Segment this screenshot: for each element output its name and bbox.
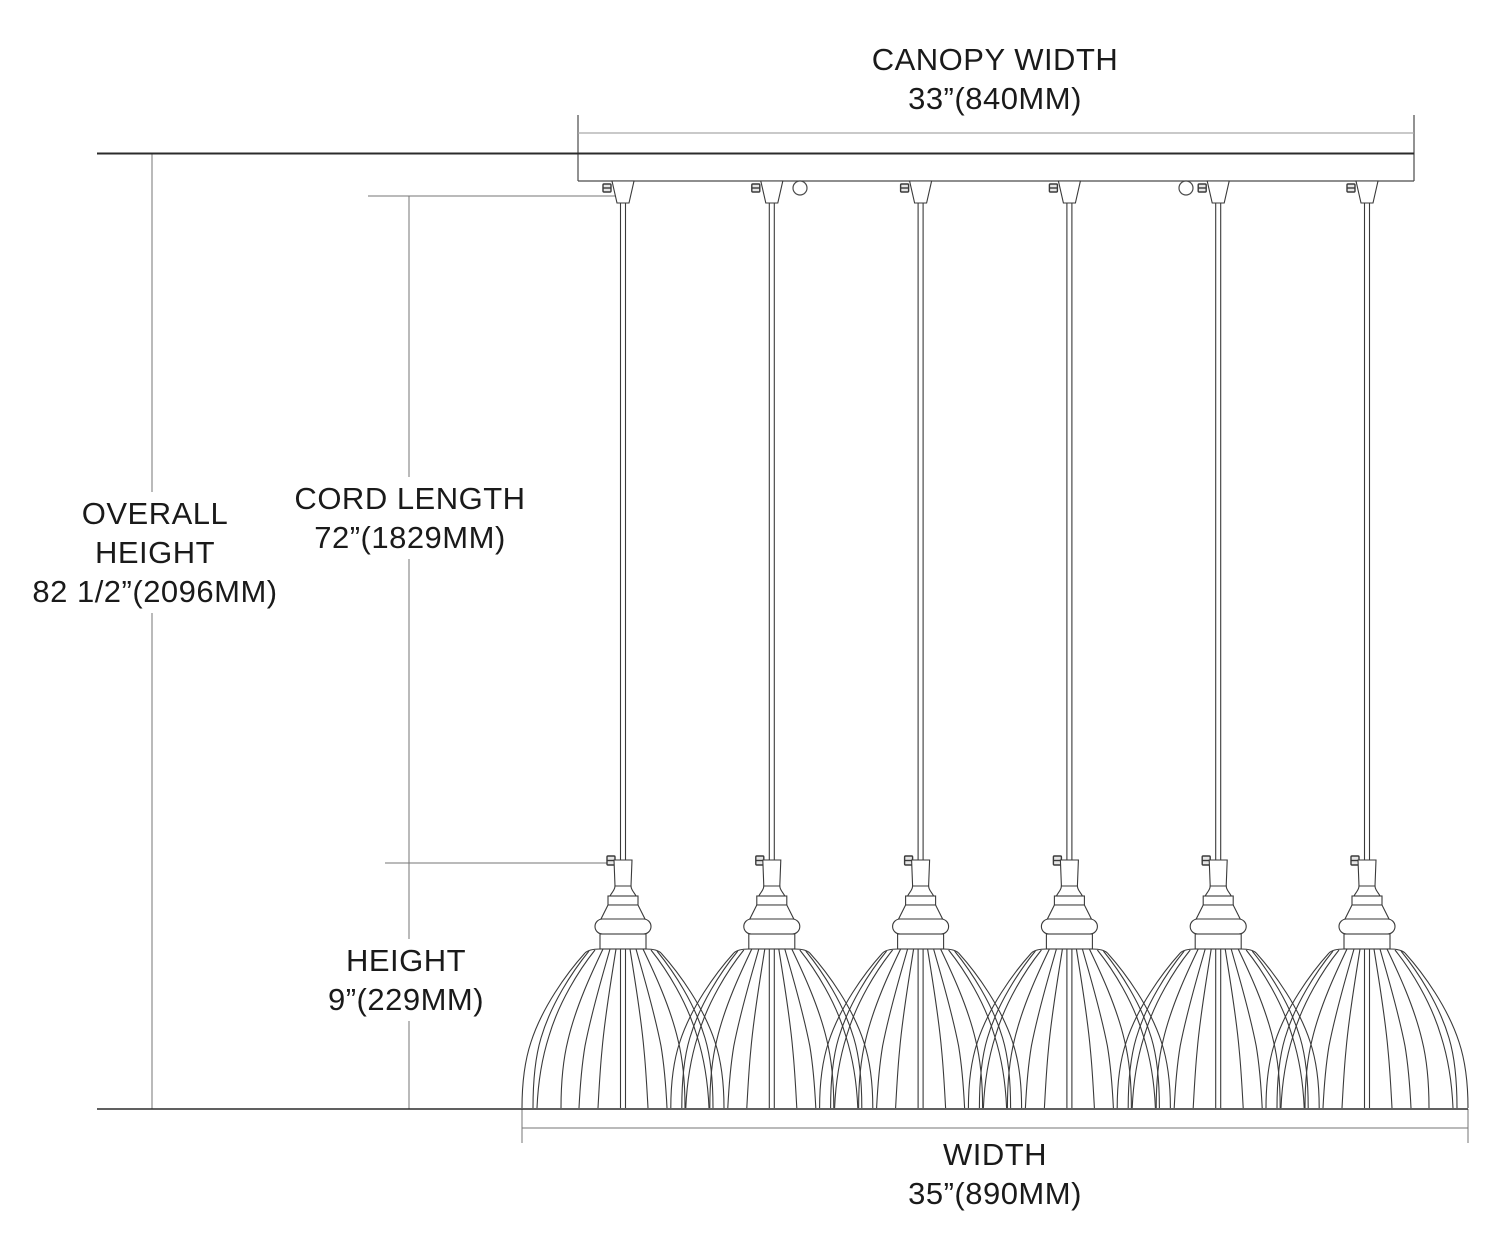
canopy: [578, 115, 1414, 181]
overall-height-label-line3: 82 1/2”(2096MM): [32, 572, 277, 611]
pendant-3: [820, 181, 1022, 1108]
overall-height-label: OVERALL HEIGHT 82 1/2”(2096MM): [26, 492, 283, 613]
cord-length-label-line1: CORD LENGTH: [294, 479, 525, 518]
shade-height-label: HEIGHT 9”(229MM): [322, 939, 490, 1021]
cord-length-label: CORD LENGTH 72”(1829MM): [288, 477, 531, 559]
cord-length-label-line2: 72”(1829MM): [294, 518, 525, 557]
shade-height-label-line2: 9”(229MM): [328, 980, 484, 1019]
pendant-5: [1117, 181, 1319, 1108]
fixture-line-drawing: [0, 0, 1500, 1259]
pendant-1: [522, 181, 724, 1108]
pendants: [522, 181, 1468, 1108]
width-label-line2: 35”(890MM): [908, 1174, 1082, 1213]
canopy-holes: [793, 181, 1193, 195]
width-label-line1: WIDTH: [908, 1135, 1082, 1174]
canopy-width-label: CANOPY WIDTH 33”(840MM): [866, 38, 1125, 120]
canopy-hole-2: [1179, 181, 1193, 195]
canopy-width-label-line2: 33”(840MM): [872, 79, 1119, 118]
width-label: WIDTH 35”(890MM): [902, 1133, 1088, 1215]
shade-height-label-line1: HEIGHT: [328, 941, 484, 980]
diagram-canvas: CANOPY WIDTH 33”(840MM) OVERALL HEIGHT 8…: [0, 0, 1500, 1259]
pendant-6: [1266, 181, 1468, 1108]
pendant-4: [968, 181, 1170, 1108]
overall-height-label-line2: HEIGHT: [32, 533, 277, 572]
canopy-hole-1: [793, 181, 807, 195]
canopy-width-label-line1: CANOPY WIDTH: [872, 40, 1119, 79]
overall-height-label-line1: OVERALL: [32, 494, 277, 533]
pendant-2: [671, 181, 873, 1108]
